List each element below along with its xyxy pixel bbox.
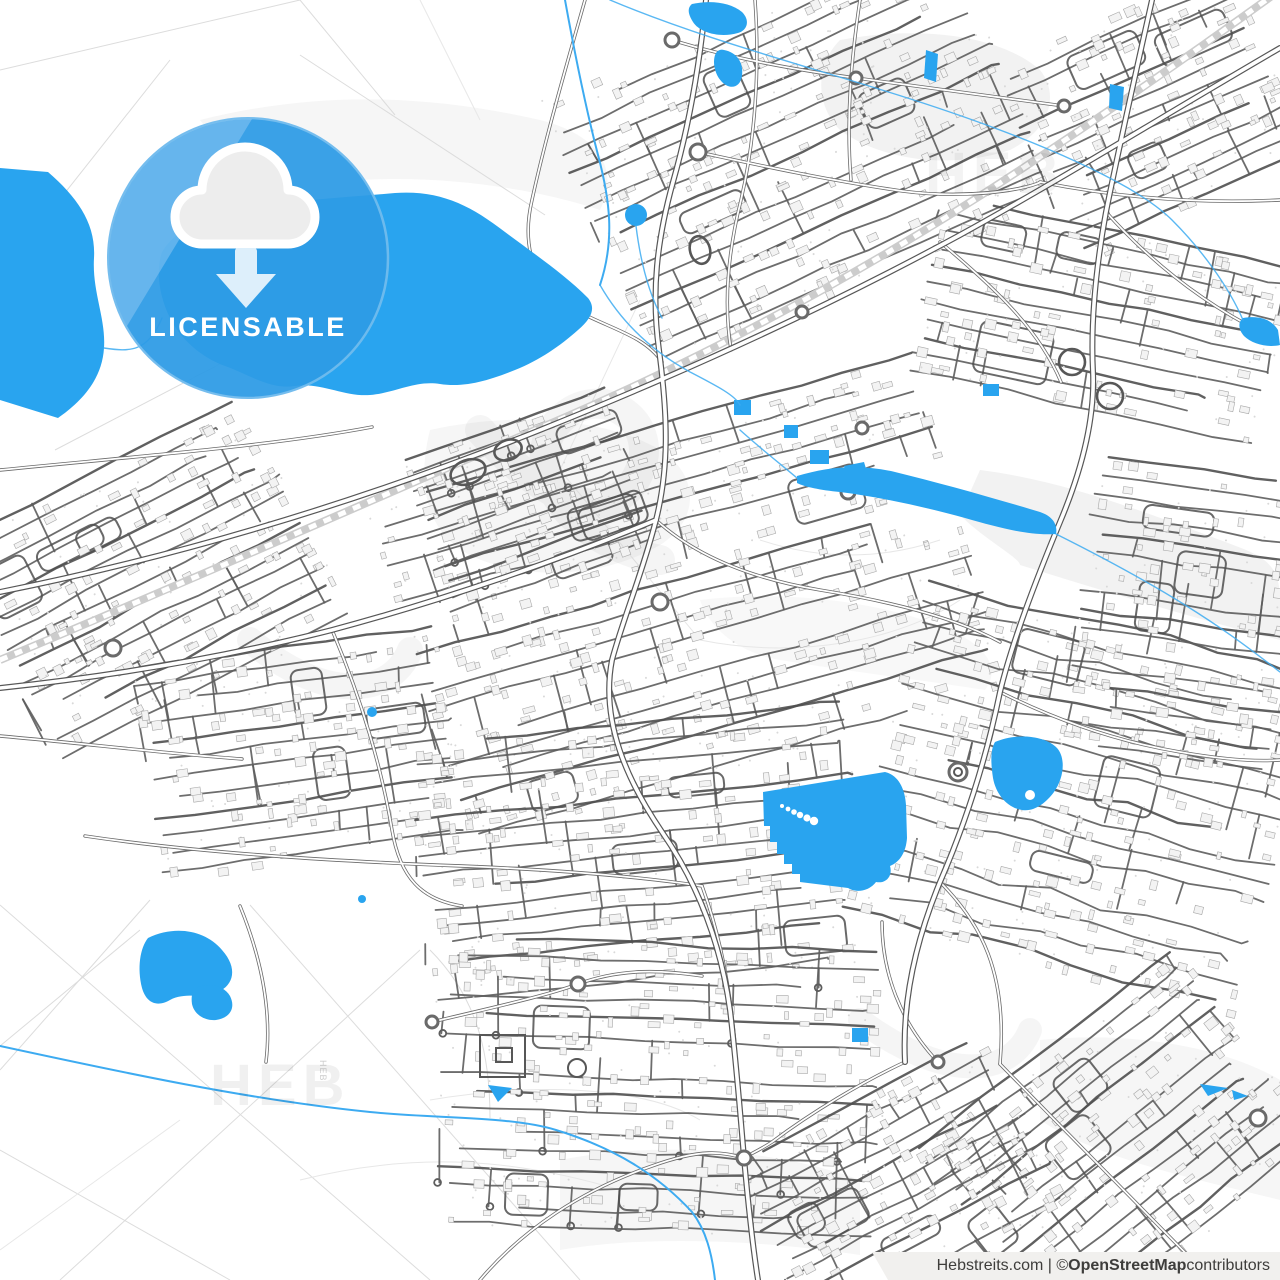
licensable-badge[interactable]: LICENSABLE [106,116,390,400]
watermark-heb: HEB [210,1052,350,1119]
attribution-suffix: contributors [1186,1257,1270,1275]
watermark-heb-2: HEB [925,140,1065,207]
map-canvas: LICENSABLE HEB HEB HEB Hebstreits.com | … [0,0,1280,1280]
badge-graphic [106,116,390,400]
attribution-brand: OpenStreetMap [1068,1257,1186,1275]
attribution-prefix: Hebstreits.com | © [937,1257,1069,1275]
map-attribution: Hebstreits.com | © OpenStreetMap contrib… [872,1252,1280,1280]
watermark-vertical: HEB [318,1060,328,1082]
badge-label: LICENSABLE [106,312,390,343]
